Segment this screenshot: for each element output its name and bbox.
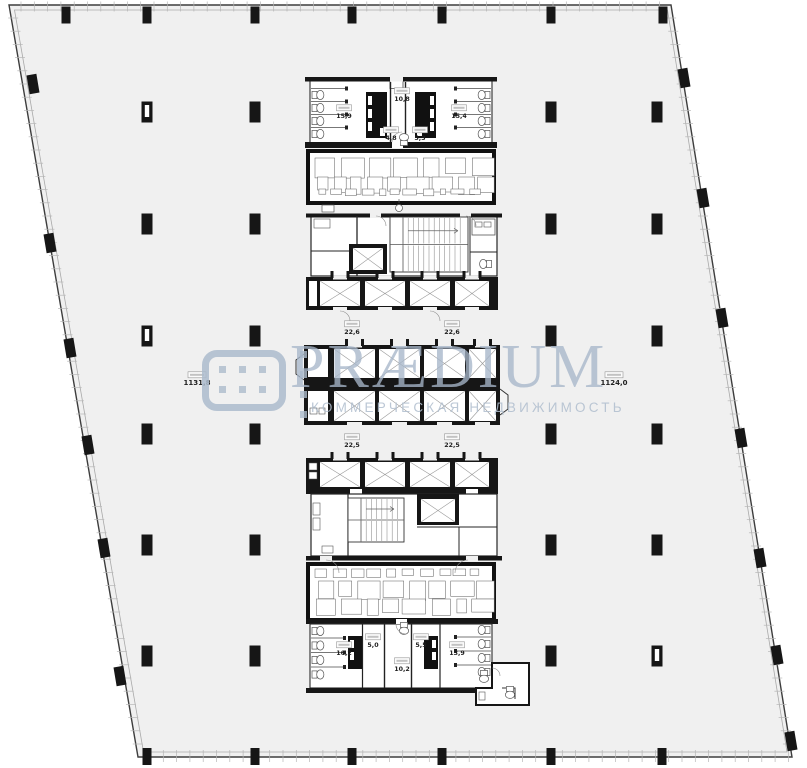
column <box>142 214 153 235</box>
wc-fixture <box>399 134 408 146</box>
column <box>438 7 447 24</box>
equipment-box <box>362 189 374 195</box>
column <box>250 535 261 556</box>
wc-fixture <box>312 655 324 664</box>
office-area-label: 1131,8 <box>183 379 210 387</box>
column <box>546 424 557 445</box>
equipment-box <box>410 581 426 601</box>
wc-fixture <box>312 641 324 650</box>
equipment-box <box>345 189 356 196</box>
equipment-box <box>315 569 326 578</box>
equipment-box <box>319 189 326 194</box>
column <box>143 7 152 24</box>
room-area-label: 10,2 <box>394 666 410 673</box>
wc-fixture <box>312 116 324 125</box>
column <box>250 424 261 445</box>
wc-fixture <box>312 129 324 138</box>
column <box>652 424 663 445</box>
room-area-label: 16,2 <box>336 650 352 657</box>
column <box>348 748 357 765</box>
column <box>142 535 153 556</box>
wc-fixture <box>478 653 490 662</box>
equipment-box <box>470 569 479 575</box>
office-area-label: 1124,0 <box>600 379 627 387</box>
wc-fixture <box>478 90 490 99</box>
equipment-box <box>472 599 495 612</box>
column <box>251 7 260 24</box>
wc-fixture <box>312 103 324 112</box>
equipment-box <box>341 599 361 614</box>
column <box>546 326 557 347</box>
equipment-box <box>369 158 390 178</box>
column <box>547 748 556 765</box>
column <box>142 424 153 445</box>
equipment-box <box>451 189 464 194</box>
equipment-box <box>421 569 434 576</box>
room-area-label: 5,0 <box>367 642 379 649</box>
equipment-box <box>477 581 495 599</box>
room-area-label: 10,8 <box>394 96 410 103</box>
equipment-box <box>383 599 399 613</box>
equipment-box <box>342 158 365 178</box>
wc-fixture <box>478 103 490 112</box>
room-area-label: 22,5 <box>444 442 460 449</box>
equipment-box <box>318 177 328 190</box>
equipment-box <box>429 581 446 598</box>
wc-fixture <box>478 639 490 648</box>
room-area-label: 15,9 <box>336 113 352 120</box>
room-area-label: 22,5 <box>344 442 360 449</box>
column <box>438 748 447 765</box>
column <box>652 102 663 123</box>
column <box>250 646 261 667</box>
equipment-box <box>472 158 494 176</box>
equipment-box <box>331 189 342 194</box>
column <box>143 748 152 765</box>
room-area-label: 4,8 <box>385 135 396 142</box>
equipment-box <box>352 569 364 578</box>
equipment-box <box>316 599 335 615</box>
column <box>142 646 153 667</box>
wc-fixture <box>479 671 488 683</box>
equipment-box <box>423 158 439 177</box>
column <box>652 535 663 556</box>
equipment-box <box>403 189 417 195</box>
equipment-box <box>440 569 451 575</box>
column <box>546 535 557 556</box>
equipment-box <box>387 569 396 577</box>
wc-fixture <box>480 259 492 268</box>
column <box>251 748 260 765</box>
column <box>348 7 357 24</box>
wc-fixture <box>312 670 324 679</box>
wc-fixture <box>478 116 490 125</box>
column <box>546 646 557 667</box>
room-area-label: 22,6 <box>344 329 360 336</box>
vent-symbol <box>396 205 403 212</box>
column <box>250 102 261 123</box>
equipment-box <box>319 581 334 599</box>
room-area-label: 5,3 <box>414 135 425 142</box>
column <box>62 7 71 24</box>
wc-fixture <box>505 687 514 699</box>
room-area-label: 13,9 <box>449 650 465 657</box>
equipment-box <box>315 158 335 178</box>
equipment-box <box>423 189 433 196</box>
wc-fixture <box>312 90 324 99</box>
wc-fixture <box>312 626 324 635</box>
equipment-box <box>470 189 481 194</box>
equipment-box <box>358 581 380 600</box>
column <box>250 214 261 235</box>
equipment-box <box>432 599 450 616</box>
column <box>659 7 668 24</box>
wc-fixture <box>478 625 490 634</box>
equipment-box <box>367 569 381 577</box>
equipment-box <box>339 581 352 596</box>
wc-fixture <box>478 129 490 138</box>
equipment-box <box>390 189 399 194</box>
floor-plan-drawing: 1131,8 1124,0 15,9 10,8 4,8 5,3 15,4 22,… <box>0 0 807 768</box>
column <box>658 748 667 765</box>
column <box>547 7 556 24</box>
equipment-box <box>451 581 475 596</box>
equipment-box <box>383 581 404 597</box>
floor-plan-page: 1131,8 1124,0 15,9 10,8 4,8 5,3 15,4 22,… <box>0 0 807 768</box>
equipment-box <box>380 189 386 196</box>
equipment-box <box>333 569 346 578</box>
equipment-box <box>367 599 378 615</box>
room-area-label: 15,4 <box>451 113 467 120</box>
column <box>546 102 557 123</box>
equipment-box <box>457 599 467 613</box>
equipment-box <box>440 189 445 195</box>
equipment-box <box>402 569 414 575</box>
column <box>250 326 261 347</box>
equipment-box <box>394 158 418 178</box>
room-area-label: 5,5 <box>415 642 426 649</box>
equipment-box <box>446 158 466 174</box>
column <box>546 214 557 235</box>
room-area-label: 22,6 <box>444 329 460 336</box>
column <box>652 326 663 347</box>
equipment-box <box>402 599 425 614</box>
column <box>652 214 663 235</box>
